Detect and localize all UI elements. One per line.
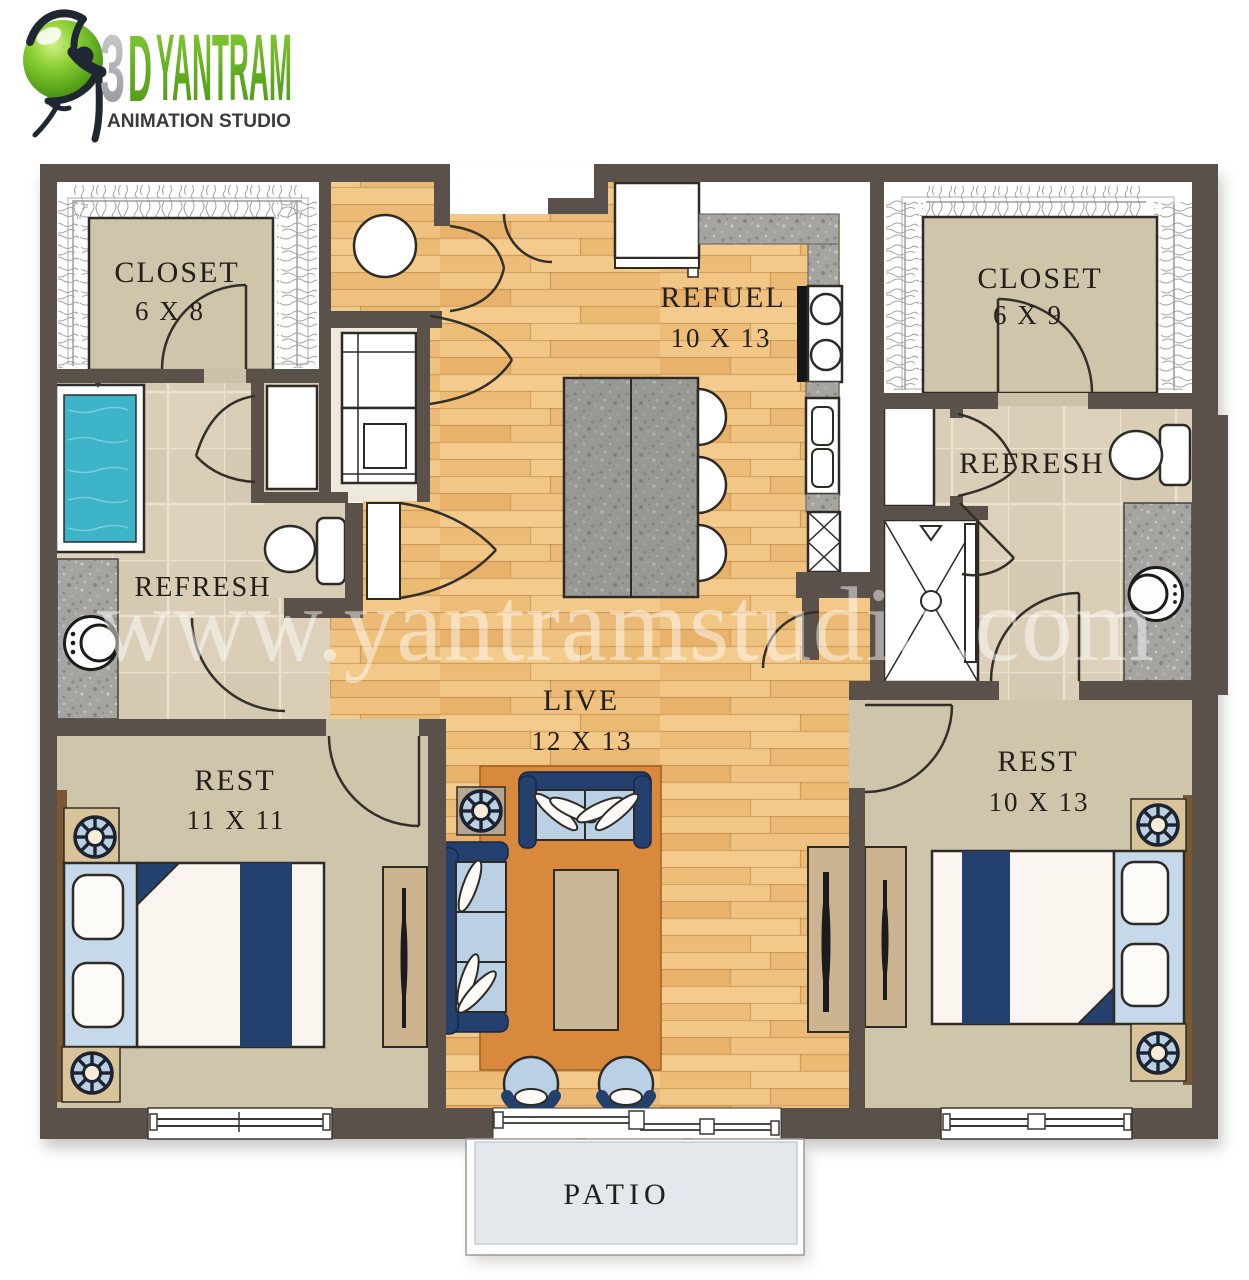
svg-text:3: 3: [100, 16, 125, 122]
svg-text:11 X 11: 11 X 11: [187, 805, 286, 835]
svg-text:CLOSET: CLOSET: [114, 256, 239, 289]
svg-text:PATIO: PATIO: [563, 1178, 670, 1211]
svg-text:REST: REST: [997, 745, 1078, 778]
svg-text:REST: REST: [194, 764, 275, 797]
svg-text:REFRESH: REFRESH: [959, 447, 1105, 480]
svg-text:ANIMATION STUDIO: ANIMATION STUDIO: [107, 111, 291, 132]
svg-text:12 X 13: 12 X 13: [532, 726, 633, 756]
svg-text:6 X 8: 6 X 8: [135, 296, 205, 326]
svg-text:YANTRAM: YANTRAM: [156, 15, 292, 121]
svg-text:10 X 13: 10 X 13: [671, 323, 772, 353]
svg-text:6 X 9: 6 X 9: [993, 300, 1063, 330]
svg-text:CLOSET: CLOSET: [977, 262, 1102, 295]
svg-text:D: D: [128, 16, 152, 122]
svg-text:LIVE: LIVE: [543, 684, 619, 717]
svg-text:10 X 13: 10 X 13: [989, 787, 1090, 817]
svg-text:REFUEL: REFUEL: [660, 281, 785, 314]
svg-text:www.yantramstudio.com: www.yantramstudio.com: [97, 566, 1155, 683]
